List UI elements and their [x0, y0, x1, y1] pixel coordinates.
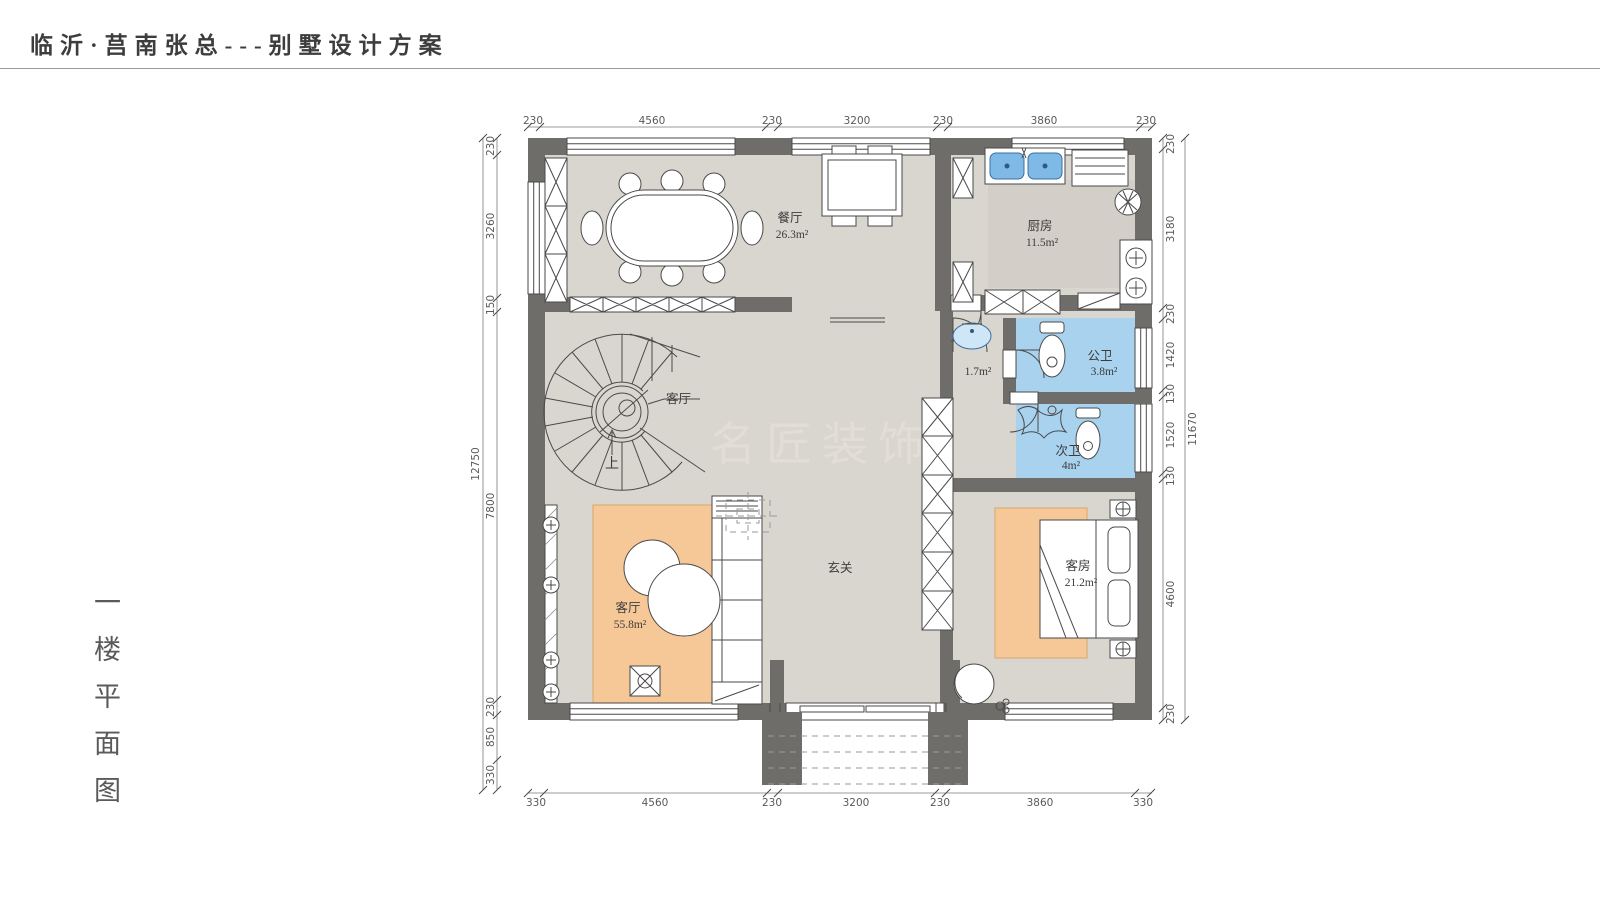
dim-label: 230 — [1165, 304, 1177, 324]
window-bottom-guest — [1005, 703, 1113, 720]
stair-up-label: 上 — [605, 456, 619, 472]
dining-side-table-icon — [822, 146, 902, 226]
window-right-secondbath — [1135, 404, 1152, 472]
tv-wall — [543, 505, 559, 703]
entry-label: 玄关 — [827, 560, 852, 575]
window-top-dining — [567, 138, 735, 155]
dim-label: 1420 — [1165, 342, 1177, 369]
dim-label: 130 — [1165, 384, 1177, 404]
page: 临沂·莒南张总---别墅设计方案 一楼平面图 名匠装饰 — [0, 0, 1600, 900]
range-hood-icon — [1078, 293, 1120, 309]
dim-label: 230 — [762, 797, 782, 809]
floor-plan-drawing: 名匠装饰 — [0, 0, 1600, 900]
dim-label: 3860 — [1027, 797, 1054, 809]
nightstand-top-icon — [1110, 500, 1136, 518]
dim-label: 230 — [1136, 115, 1156, 127]
dim-label: 850 — [485, 727, 497, 747]
dim-label-overall: 12750 — [470, 447, 482, 480]
washbasin-icon — [953, 323, 991, 349]
stove-icon — [1120, 240, 1152, 304]
dim-label: 230 — [933, 115, 953, 127]
svg-text:21.2m²: 21.2m² — [1065, 577, 1098, 589]
svg-text:3.8m²: 3.8m² — [1091, 366, 1118, 378]
svg-text:次卫: 次卫 — [1055, 444, 1080, 458]
kitchen-sink-icon — [985, 148, 1065, 184]
window-left-dining — [528, 182, 545, 294]
dim-label: 4560 — [639, 115, 666, 127]
dim-label: 1520 — [1165, 422, 1177, 449]
svg-text:4m²: 4m² — [1062, 460, 1081, 472]
svg-text:26.3m²: 26.3m² — [776, 229, 809, 241]
dim-label: 230 — [762, 115, 782, 127]
dim-label: 230 — [930, 797, 950, 809]
stair-callout-label: 客厅 — [666, 391, 691, 406]
dim-label: 150 — [485, 295, 497, 315]
dim-label: 3200 — [844, 115, 871, 127]
dim-label: 3260 — [485, 213, 497, 240]
sideboard-cabinets — [570, 297, 735, 312]
dim-label: 230 — [485, 136, 497, 156]
svg-text:玄关: 玄关 — [827, 560, 852, 575]
svg-text:餐厅: 餐厅 — [777, 210, 802, 225]
wash-area-label: 1.7m² — [965, 366, 992, 378]
dim-label-overall: 11670 — [1187, 412, 1199, 445]
dim-label: 3180 — [1165, 216, 1177, 243]
window-top-dining2 — [792, 138, 930, 155]
dim-label: 7800 — [485, 493, 497, 520]
side-table-icon — [630, 666, 660, 696]
svg-text:客厅: 客厅 — [615, 600, 640, 615]
toilet-public-icon — [1039, 322, 1065, 377]
nightstand-bottom-icon — [1110, 640, 1136, 658]
dim-label: 4560 — [642, 797, 669, 809]
dim-label: 130 — [1165, 466, 1177, 486]
dim-label: 230 — [523, 115, 543, 127]
dim-label: 230 — [1165, 704, 1177, 724]
hall-wardrobe — [922, 398, 953, 630]
dim-label: 3200 — [843, 797, 870, 809]
dim-label: 330 — [526, 797, 546, 809]
svg-text:客房: 客房 — [1065, 558, 1090, 573]
dim-label: 3860 — [1031, 115, 1058, 127]
fridge-icon — [1072, 150, 1128, 186]
dining-tall-cabinet — [545, 158, 567, 302]
svg-text:1.7m²: 1.7m² — [965, 366, 992, 378]
svg-text:公卫: 公卫 — [1087, 349, 1112, 363]
dim-label: 330 — [485, 765, 497, 785]
dim-label: 230 — [1165, 134, 1177, 154]
dim-label: 230 — [485, 697, 497, 717]
svg-text:55.8m²: 55.8m² — [614, 619, 647, 631]
window-bottom-living — [570, 703, 738, 720]
window-right-publicbath — [1135, 328, 1152, 388]
entry-door — [786, 703, 944, 720]
dim-label: 330 — [1133, 797, 1153, 809]
watermark: 名匠装饰 — [710, 419, 934, 470]
floor-drain-icon — [1115, 189, 1141, 215]
svg-text:11.5m²: 11.5m² — [1026, 237, 1059, 249]
svg-text:厨房: 厨房 — [1027, 218, 1052, 233]
dim-label: 4600 — [1165, 581, 1177, 608]
